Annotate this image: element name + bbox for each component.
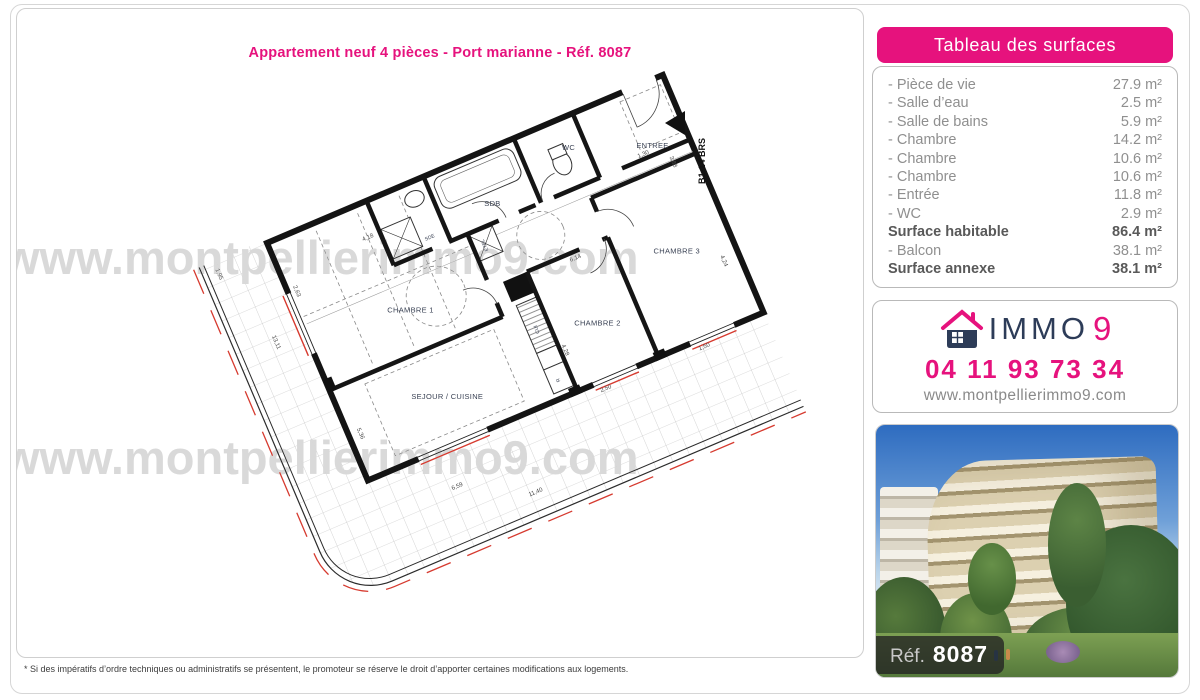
surfaces-table: - Pièce de vie 27.9 m² - Salle d’eau 2.5… <box>872 66 1178 288</box>
tree <box>968 543 1016 615</box>
house-icon <box>939 308 985 350</box>
surface-row-label: - Chambre <box>888 131 957 149</box>
surface-row-value: 5.9 m² <box>1121 113 1162 131</box>
surface-row-value: 38.1 m² <box>1112 260 1162 278</box>
person <box>1006 649 1010 660</box>
ref-label: Réf. <box>890 646 925 668</box>
building-photo: Réf. 8087 <box>875 424 1179 678</box>
phone-number[interactable]: 04 11 93 73 34 <box>925 354 1125 385</box>
agency-card: IMMO 9 04 11 93 73 34 www.montpellierimm… <box>872 300 1178 413</box>
surface-row: - Balcon 38.1 m² <box>888 242 1162 260</box>
surface-row-label: - Pièce de vie <box>888 76 976 94</box>
surface-row: Surface habitable 86.4 m² <box>888 223 1162 241</box>
surface-row-label: - Balcon <box>888 242 941 260</box>
surface-row-value: 27.9 m² <box>1113 76 1162 94</box>
surface-row: - WC 2.9 m² <box>888 205 1162 223</box>
room-label-chambre1: CHAMBRE 1 <box>387 305 433 314</box>
surface-row-value: 14.2 m² <box>1113 131 1162 149</box>
room-label-chambre2: CHAMBRE 2 <box>574 318 620 327</box>
brand-immo-text: IMMO <box>989 311 1089 347</box>
ref-number: 8087 <box>933 641 988 668</box>
surfaces-header: Tableau des surfaces <box>877 27 1173 63</box>
surface-row-label: - Salle d’eau <box>888 94 969 112</box>
website-link[interactable]: www.montpellierimmo9.com <box>924 387 1127 405</box>
brand-9-text: 9 <box>1093 310 1111 348</box>
room-label-wc: WC <box>562 143 575 152</box>
surface-row-label: - Chambre <box>888 168 957 186</box>
flower-bush <box>1046 641 1080 663</box>
surface-row-label: - Salle de bains <box>888 113 988 131</box>
surface-row: - Salle de bains 5.9 m² <box>888 113 1162 131</box>
surface-row: - Chambre 14.2 m² <box>888 131 1162 149</box>
ref-badge: Réf. 8087 <box>876 636 1004 674</box>
surface-row-value: 86.4 m² <box>1112 223 1162 241</box>
surface-row: Surface annexe 38.1 m² <box>888 260 1162 278</box>
surface-row-label: - WC <box>888 205 921 223</box>
surface-row: - Pièce de vie 27.9 m² <box>888 76 1162 94</box>
floor-plan-drawing: CHAMBRE 1 SEJOUR / CUISINE CHAMBRE 2 CHA… <box>194 71 806 610</box>
disclaimer-text: * Si des impératifs d’ordre techniques o… <box>24 664 628 674</box>
surface-row-label: Surface habitable <box>888 223 1009 241</box>
surface-row-label: - Chambre <box>888 150 957 168</box>
room-label-entree: ENTREE <box>636 141 668 150</box>
surface-row-value: 2.9 m² <box>1121 205 1162 223</box>
room-label-sejour: SEJOUR / CUISINE <box>411 392 483 401</box>
surface-row: - Chambre 10.6 m² <box>888 150 1162 168</box>
surface-row-value: 10.6 m² <box>1113 168 1162 186</box>
surface-row-value: 2.5 m² <box>1121 94 1162 112</box>
agency-logo: IMMO 9 <box>939 308 1112 350</box>
tree <box>1048 483 1106 607</box>
surface-row-label: Surface annexe <box>888 260 995 278</box>
page-title: Appartement neuf 4 pièces - Port mariann… <box>17 45 863 61</box>
surface-row-label: - Entrée <box>888 186 940 204</box>
surface-row-value: 11.8 m² <box>1114 186 1162 204</box>
surface-row-value: 38.1 m² <box>1113 242 1162 260</box>
surface-row: - Entrée 11.8 m² <box>888 186 1162 204</box>
floor-plan: CHAMBRE 1 SEJOUR / CUISINE CHAMBRE 2 CHA… <box>37 61 857 658</box>
watermark-top: www.montpellierimmo9.com <box>16 230 864 285</box>
floor-plan-panel: Appartement neuf 4 pièces - Port mariann… <box>16 8 864 658</box>
surface-row: - Salle d’eau 2.5 m² <box>888 94 1162 112</box>
unit-label: B1-14 BRS <box>697 138 707 184</box>
watermark-bottom: www.montpellierimmo9.com <box>16 430 864 485</box>
surface-row: - Chambre 10.6 m² <box>888 168 1162 186</box>
surface-row-value: 10.6 m² <box>1113 150 1162 168</box>
room-label-sdb: SDB <box>484 199 500 208</box>
